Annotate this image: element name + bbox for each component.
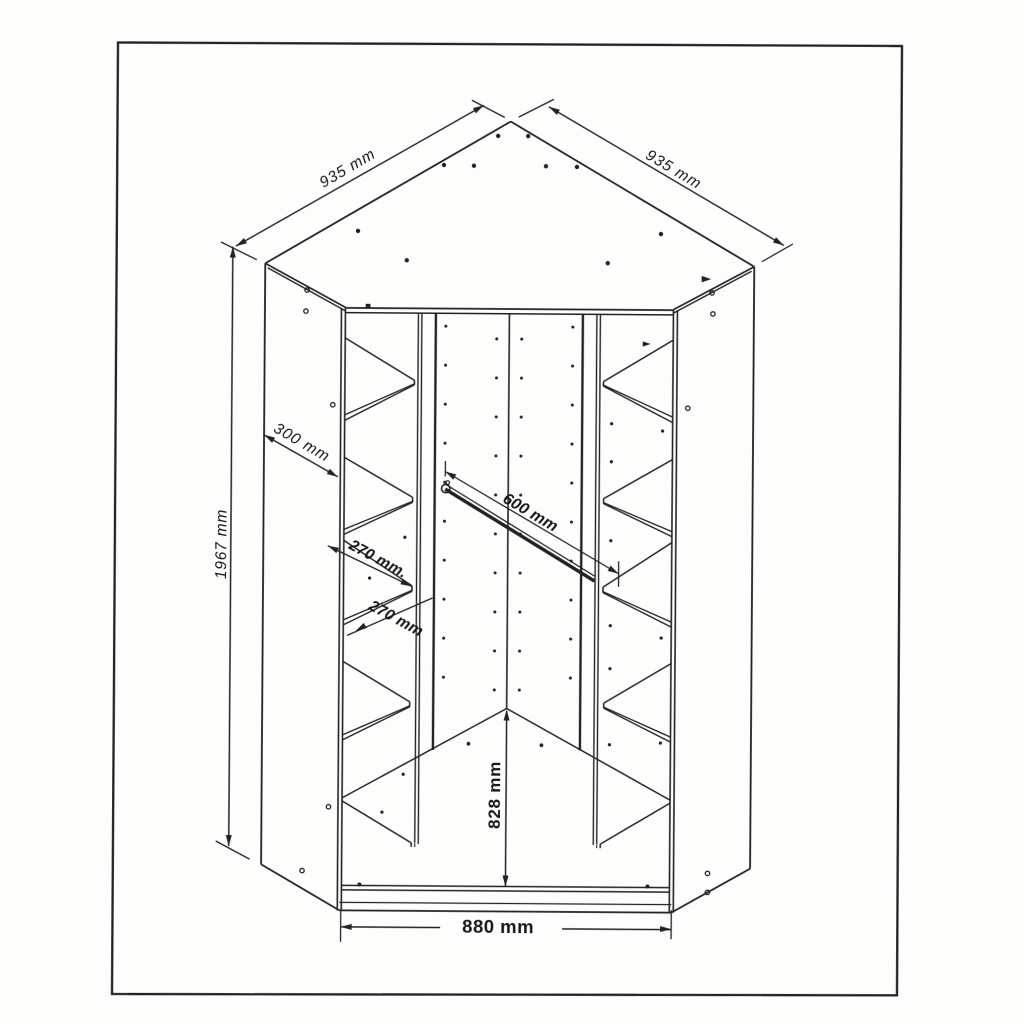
svg-text:828 mm: 828 mm [485, 761, 504, 829]
svg-text:935 mm: 935 mm [643, 147, 705, 193]
svg-text:1967 mm: 1967 mm [213, 509, 230, 579]
svg-text:935 mm: 935 mm [317, 146, 379, 192]
svg-text:300 mm: 300 mm [271, 420, 333, 466]
svg-text:880 mm: 880 mm [462, 916, 534, 938]
